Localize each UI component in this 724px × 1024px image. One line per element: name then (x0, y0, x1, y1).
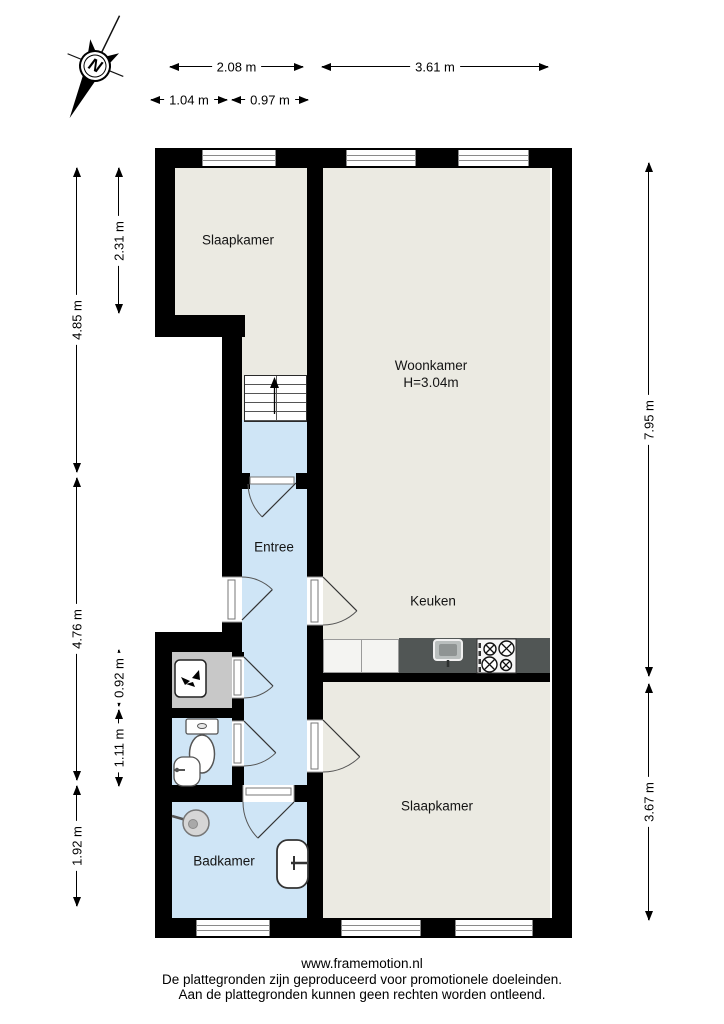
wall-toilet-east-top (232, 716, 244, 721)
room-label-woonkamer: Woonkamer H=3.04m (395, 357, 468, 391)
wall-corridor-east-upper (307, 148, 323, 577)
window (196, 920, 270, 936)
wall-left-upper (155, 148, 175, 337)
floor-closet (172, 652, 232, 710)
compass-north-label: N (85, 54, 105, 77)
room-label-entree: Entree (254, 539, 294, 556)
dimension-sub-left: 1.04 m (151, 99, 227, 100)
dimension-inner-closet: 0.92 m (118, 650, 119, 706)
room-label-badkamer: Badkamer (193, 853, 255, 870)
room-label-slaapkamer-top: Slaapkamer (202, 232, 274, 249)
window (202, 150, 276, 166)
window (455, 920, 533, 936)
window (341, 920, 421, 936)
room-label-keuken: Keuken (410, 593, 456, 610)
dimension-top-right: 3.61 m (322, 66, 548, 67)
floor-toilet (172, 716, 232, 786)
wall-corridor-east-middle (307, 625, 323, 720)
footer-website: www.framemotion.nl (0, 956, 724, 972)
window (346, 150, 416, 166)
window (458, 150, 529, 166)
wall-right (552, 148, 572, 938)
dimension-top-left: 2.08 m (170, 66, 303, 67)
wall-hall-stub-left (240, 473, 250, 489)
wall-closet-east-bottom (232, 698, 244, 718)
stairs (244, 375, 307, 422)
wall-closet-toilet-divider (172, 708, 232, 718)
floorplan-page: Slaapkamer Woonkamer H=3.04m Entree Keuk… (0, 0, 724, 1024)
footer-disclaimer-2: Aan de plattegronden kunnen geen rechten… (0, 987, 724, 1003)
wall-corridor-east-lower (307, 772, 323, 918)
dimension-inner-toilet: 1.11 m (118, 710, 119, 786)
wall-badkamer-top-left (155, 785, 243, 802)
footer-disclaimer-1: De plattegronden zijn geproduceerd voor … (0, 972, 724, 988)
dimension-inner-upper: 2.31 m (118, 168, 119, 313)
dimension-left-lower: 1.92 m (76, 786, 77, 906)
wall-corridor-west-upper (222, 337, 242, 577)
wall-keuken-slaapkamer (323, 673, 550, 682)
dimension-left-upper: 4.85 m (76, 168, 77, 472)
woonkamer-name: Woonkamer (395, 357, 468, 374)
room-label-slaapkamer-bottom: Slaapkamer (401, 798, 473, 815)
wall-jog (155, 315, 245, 337)
dimension-right-lower: 3.67 m (648, 684, 649, 920)
footer: www.framemotion.nl De plattegronden zijn… (0, 956, 724, 1003)
wall-closet-east-top (232, 652, 244, 657)
kitchen-counter (399, 638, 550, 673)
dimension-sub-right: 0.97 m (232, 99, 308, 100)
dimension-left-middle: 4.76 m (76, 478, 77, 780)
kitchen-cabinets (323, 639, 399, 673)
wall-hall-stub-right (296, 473, 307, 489)
wall-toilet-east-bottom (232, 766, 244, 786)
dimension-right-upper: 7.95 m (648, 163, 649, 676)
woonkamer-ceiling-height: H=3.04m (395, 374, 468, 391)
